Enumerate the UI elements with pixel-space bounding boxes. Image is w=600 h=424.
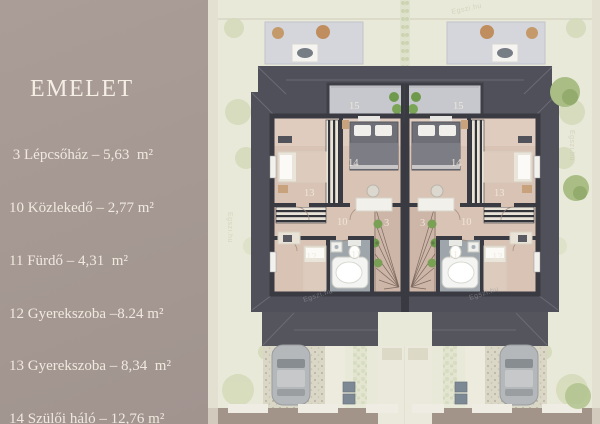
room-list-item-masterbed: 14 Szülői háló – 12,76 m² (9, 411, 208, 424)
label-bathroom-left: 11 (351, 250, 361, 261)
desk (356, 198, 392, 211)
legend-title: EMELET (0, 0, 208, 103)
nightstand (342, 120, 349, 129)
pillow (354, 125, 371, 136)
room-list: 3 Lépcsőház – 5,63 m² 10 Közlekedő – 2,7… (0, 112, 208, 424)
pillow (280, 155, 292, 179)
front-walkway (325, 346, 345, 408)
label-child-a-left: 12 (306, 252, 317, 263)
floor-plan-drawing: Egszi.hu Egszi.hu Egszi.hu Egszi.hu Egsz… (208, 0, 600, 424)
room-list-item-childroom-a: 12 Gyerekszoba –8.24 m² (9, 306, 208, 324)
sidewalk-tiles (228, 404, 398, 413)
wardrobe-horizontal (276, 207, 326, 223)
label-master-left: 14 (348, 158, 359, 169)
room-list-item-bathroom: 11 Fürdő – 4,31 m² (9, 253, 208, 271)
label-bathroom-right: 11 (448, 250, 458, 261)
label-child-b-right: 13 (494, 188, 505, 199)
pillow (375, 125, 392, 136)
label-child-b-left: 13 (304, 188, 315, 199)
car (272, 345, 310, 405)
balcony-plant (389, 92, 399, 102)
legend-panel: EMELET 3 Lépcsőház – 5,63 m² 10 Közleked… (0, 0, 208, 424)
label-stairs-left: 3 (384, 218, 389, 229)
terrace-plant (272, 27, 284, 39)
center-hedge-top (400, 0, 405, 66)
room-list-item-childroom-b: 13 Gyerekszoba – 8,34 m² (9, 358, 208, 376)
label-hallway-right: 10 (461, 217, 472, 228)
dresser (278, 136, 292, 143)
label-hallway-left: 10 (337, 217, 348, 228)
svg-text:Egszi.hu: Egszi.hu (568, 130, 575, 161)
room-list-item-staircase: 3 Lépcsőház – 5,63 m² (9, 147, 208, 165)
door-mat (382, 348, 402, 360)
label-balcony-left: 15 (349, 101, 360, 112)
nightstand (278, 185, 288, 193)
svg-text:Egszi.hu: Egszi.hu (226, 212, 233, 243)
balcony-plant (392, 104, 402, 114)
balcony-door (358, 116, 380, 121)
plot-boundary-strip (208, 0, 218, 424)
wardrobe-vertical (326, 120, 339, 205)
label-stairs-right: 3 (420, 218, 425, 229)
laptop (283, 235, 292, 242)
label-balcony-right: 15 (453, 101, 464, 112)
terrace-plant (316, 25, 330, 39)
floor-plan: Egszi.hu Egszi.hu Egszi.hu Egszi.hu Egsz… (208, 0, 600, 424)
label-master-right: 14 (451, 158, 462, 169)
screenshot-root: EMELET 3 Lépcsőház – 5,63 m² 10 Közleked… (0, 0, 600, 424)
room-list-item-hallway: 10 Közlekedő – 2,77 m² (9, 200, 208, 218)
terrace (265, 22, 363, 64)
chair (367, 185, 379, 197)
label-child-a-right: 12 (492, 252, 503, 263)
